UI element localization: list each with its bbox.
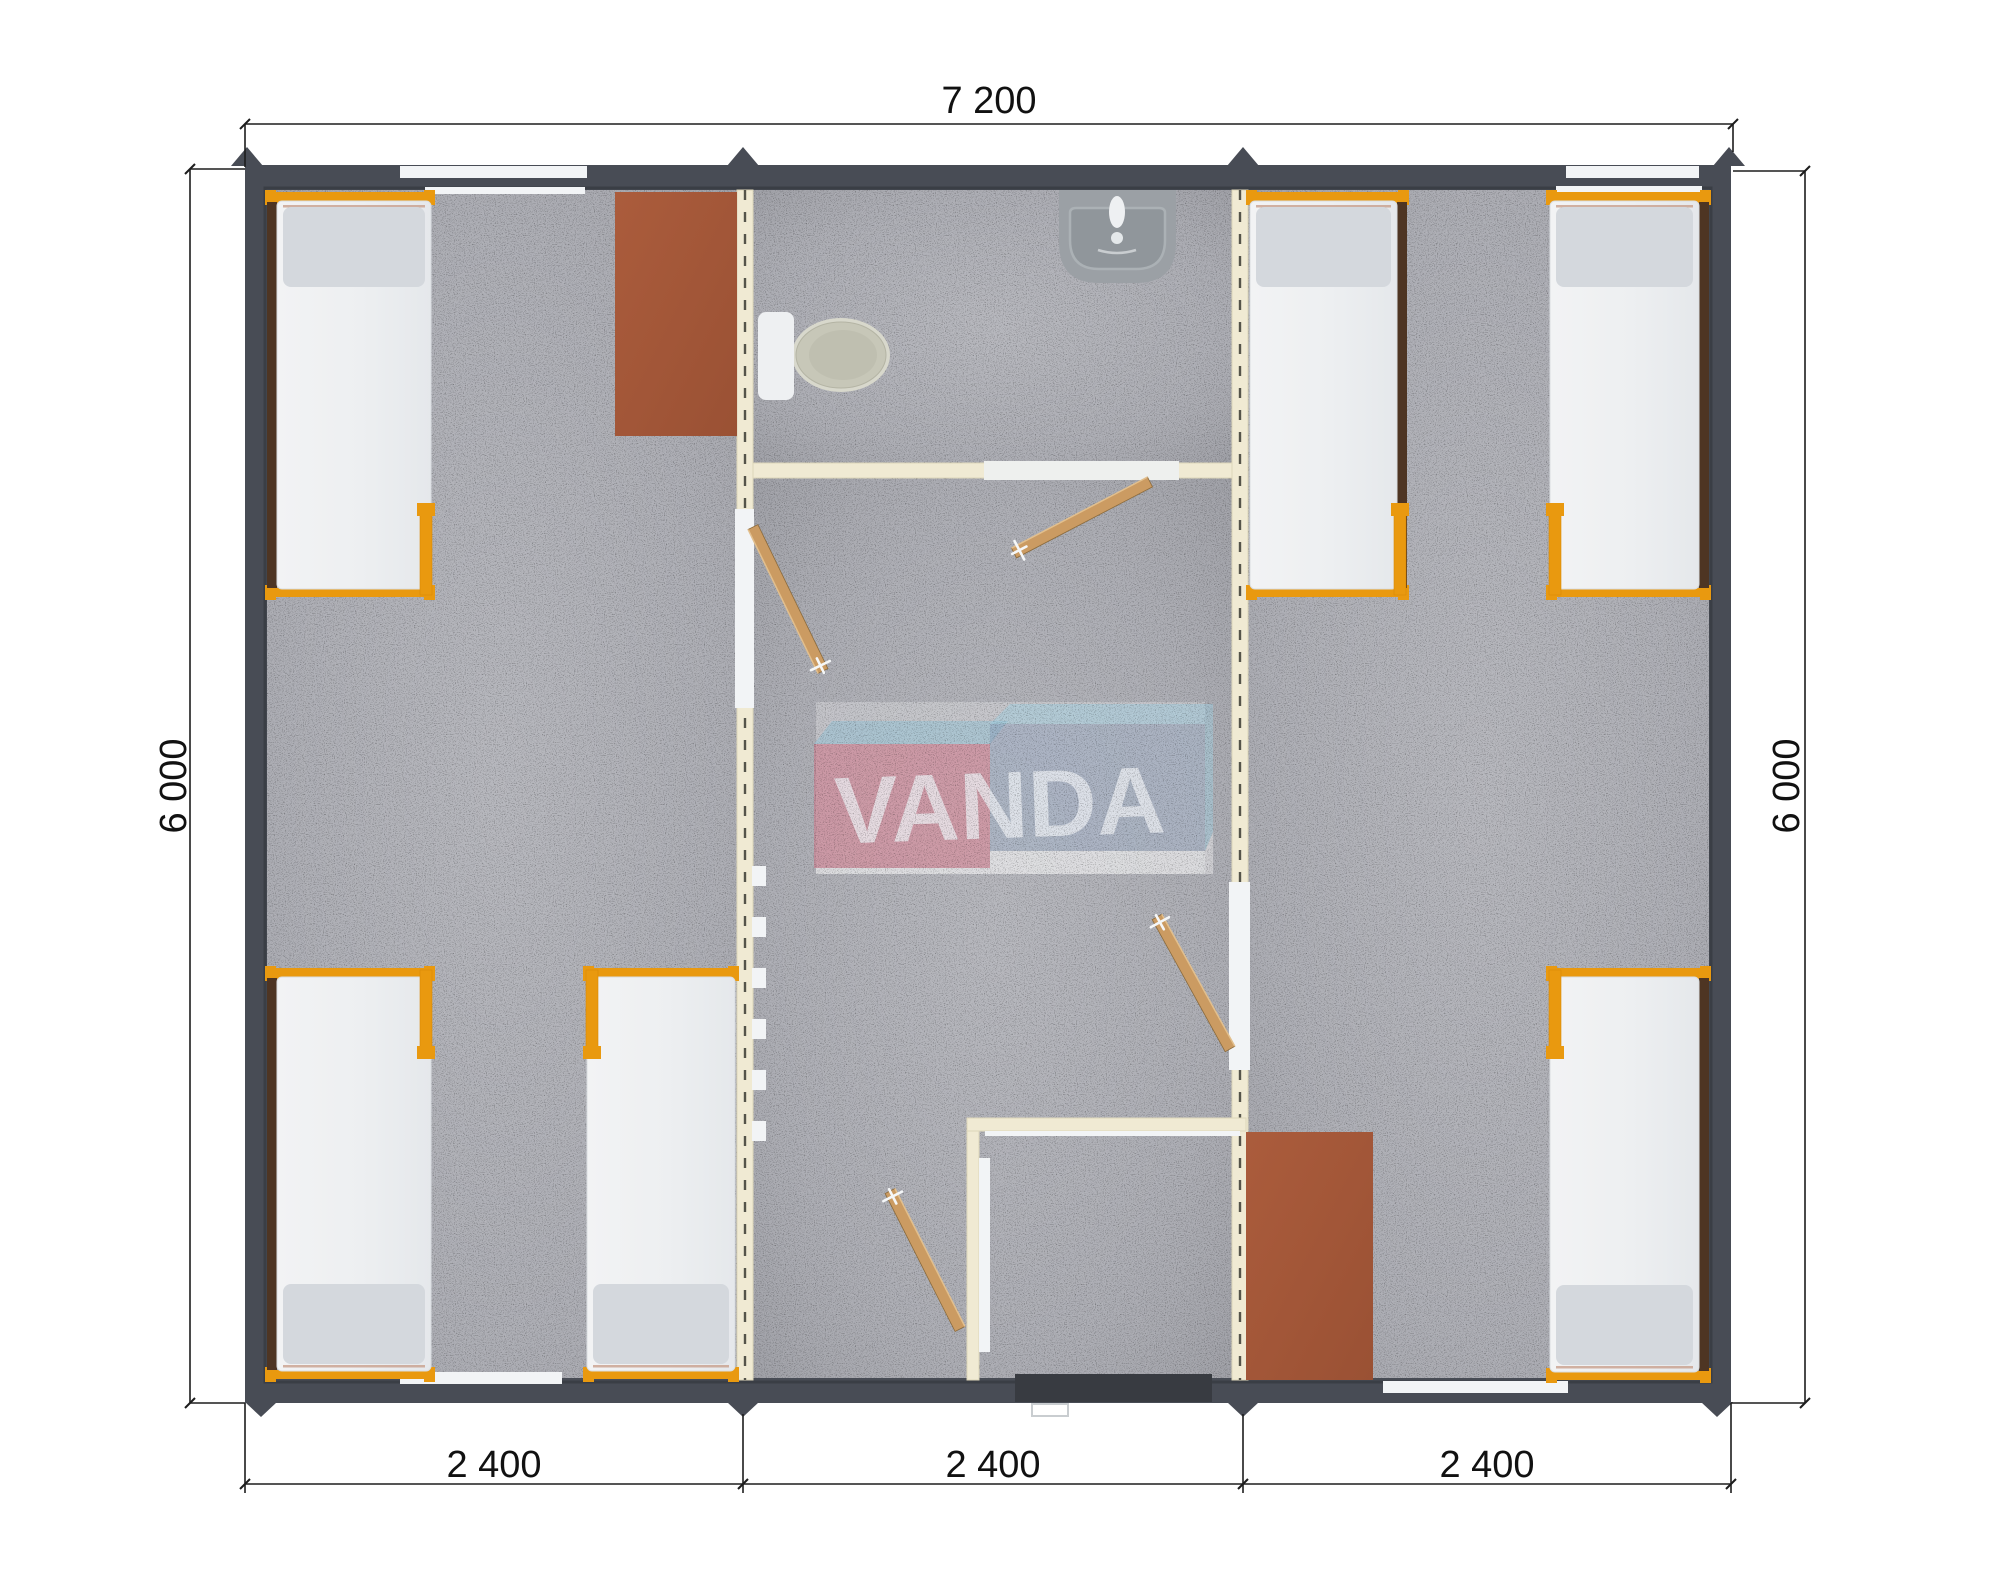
svg-text:6 000: 6 000 <box>1766 738 1808 833</box>
svg-text:6 000: 6 000 <box>153 738 195 833</box>
svg-text:2 400: 2 400 <box>1439 1444 1534 1486</box>
svg-text:2 400: 2 400 <box>945 1444 1040 1486</box>
svg-text:2 400: 2 400 <box>446 1444 541 1486</box>
svg-text:7 200: 7 200 <box>941 80 1036 122</box>
